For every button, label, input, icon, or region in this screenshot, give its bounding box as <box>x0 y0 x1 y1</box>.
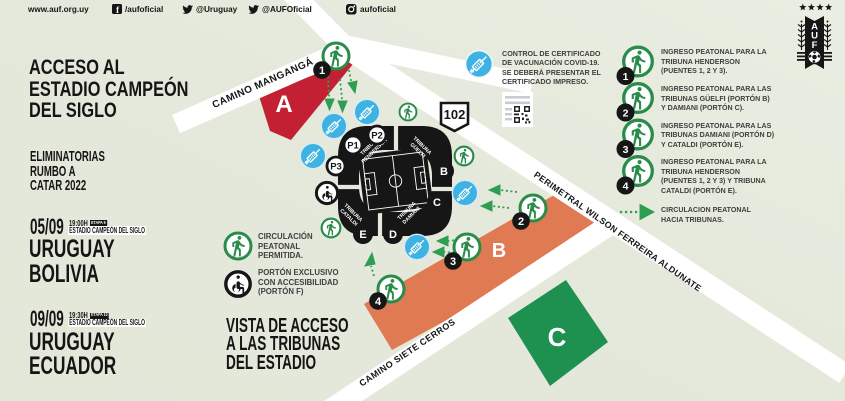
svg-text:B: B <box>440 166 448 178</box>
svg-text:P2: P2 <box>371 130 383 141</box>
svg-text:4: 4 <box>375 296 382 308</box>
svg-text:1: 1 <box>623 71 629 83</box>
svg-text:F: F <box>812 40 818 51</box>
svg-text:2: 2 <box>623 107 629 119</box>
svg-text:2: 2 <box>518 216 524 228</box>
svg-text:E: E <box>359 229 366 241</box>
svg-text:P1: P1 <box>347 140 359 151</box>
svg-text:1: 1 <box>319 65 325 77</box>
svg-text:C: C <box>433 197 441 209</box>
svg-text:102: 102 <box>444 107 466 122</box>
svg-text:B: B <box>492 240 506 262</box>
svg-text:4: 4 <box>623 180 629 192</box>
svg-text:3: 3 <box>623 144 629 156</box>
svg-text:D: D <box>389 229 397 241</box>
svg-text:A: A <box>275 91 292 118</box>
svg-text:C: C <box>548 322 567 352</box>
svg-text:3: 3 <box>450 256 456 268</box>
svg-text:P3: P3 <box>330 161 342 172</box>
